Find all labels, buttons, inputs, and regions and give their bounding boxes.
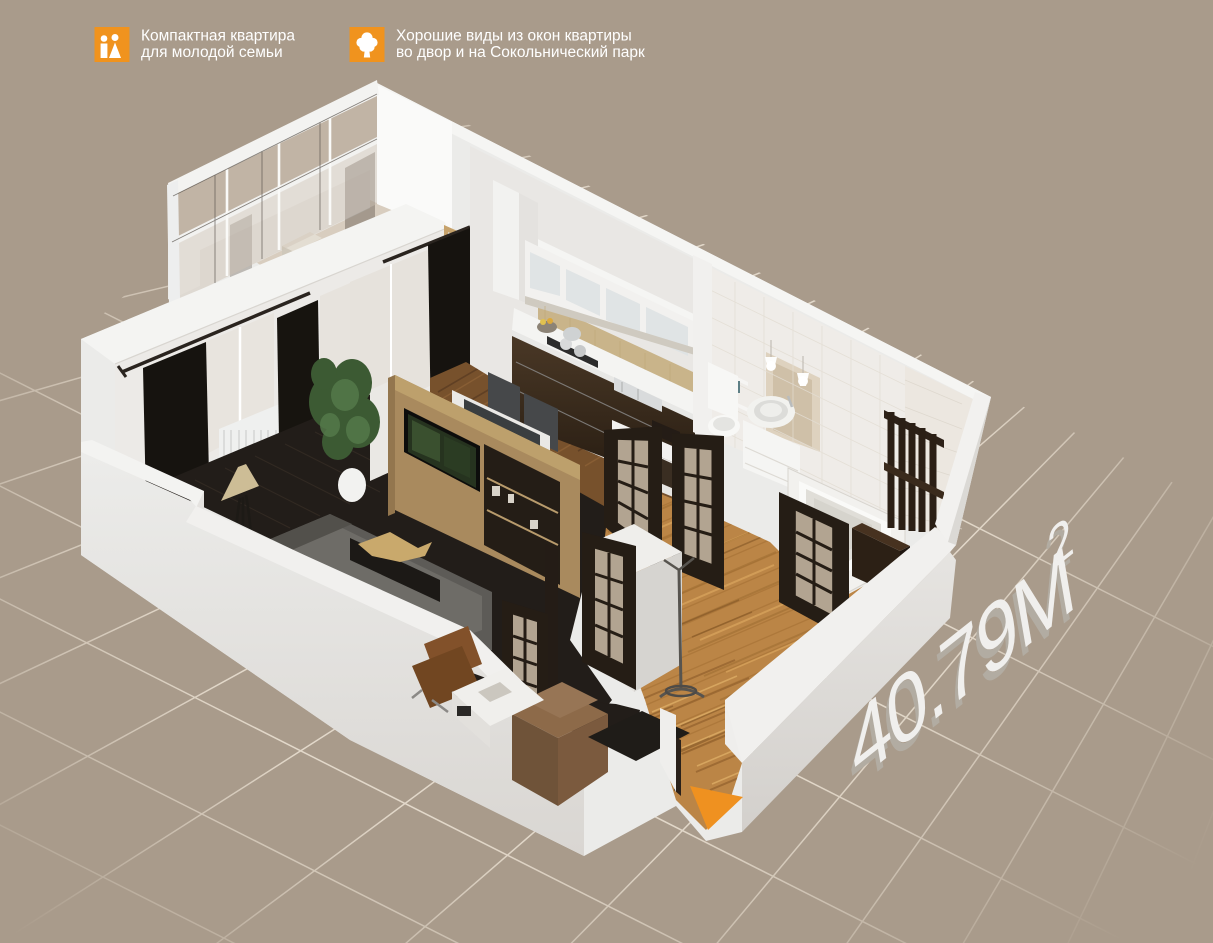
svg-text:Хорошие виды из окон квартиры: Хорошие виды из окон квартиры (396, 28, 632, 45)
svg-text:во двор и на Сокольнический па: во двор и на Сокольнический парк (396, 44, 645, 61)
svg-text:для молодой семьи: для молодой семьи (141, 44, 283, 61)
svg-text:Компактная квартира: Компактная квартира (141, 28, 295, 45)
